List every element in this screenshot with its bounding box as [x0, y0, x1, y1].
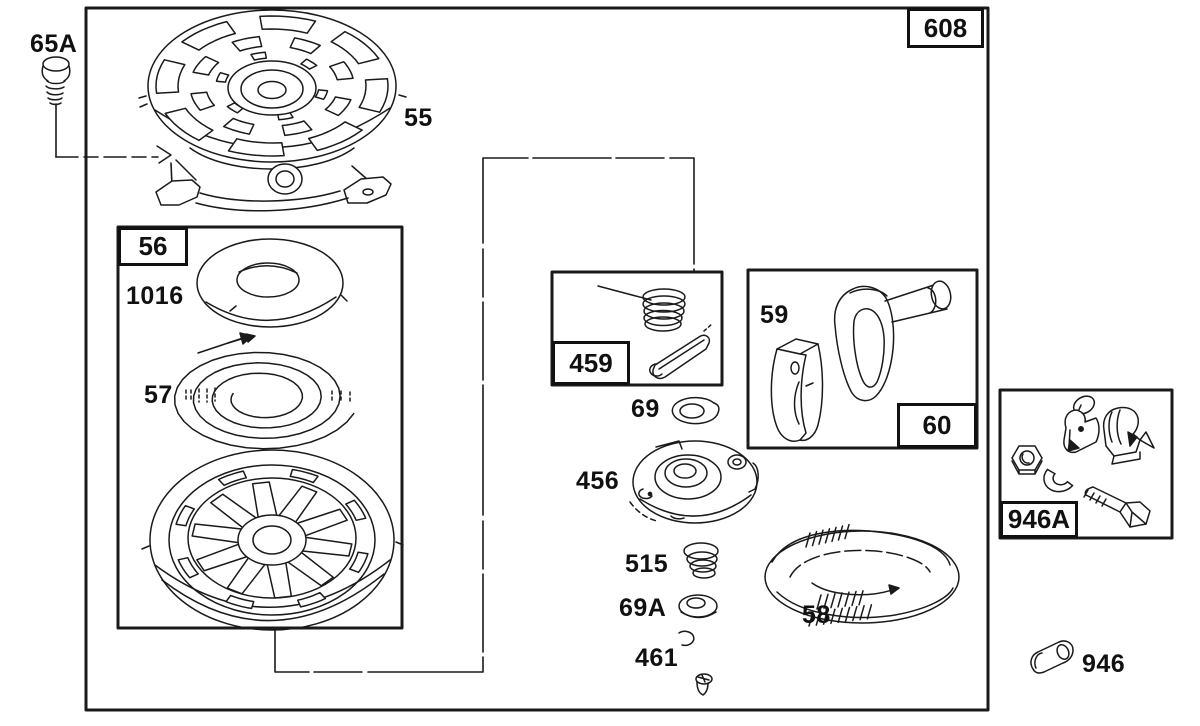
parts-diagram-page: 65A 55 1016 57 69 59 456 515 69A 461 58 …	[0, 0, 1200, 726]
screw-461-drawing	[679, 631, 712, 695]
part-label-1016: 1016	[126, 282, 184, 311]
assembly-label-box-608: 608	[907, 8, 984, 48]
washer-plate-1016-drawing	[197, 239, 347, 343]
lock-washer-drawing	[1042, 464, 1074, 495]
part-label-69: 69	[631, 395, 660, 424]
washer-69a-drawing	[679, 595, 717, 618]
part-label-55: 55	[404, 104, 433, 133]
part-label-59: 59	[760, 301, 789, 330]
part-label-946: 946	[1082, 650, 1125, 679]
starter-housing-drawing	[139, 10, 406, 162]
washer-69-drawing	[672, 398, 719, 424]
part-label-57: 57	[144, 381, 173, 410]
part-label-461: 461	[635, 644, 678, 673]
clutch-spring-drawing	[684, 543, 718, 578]
clutch-pulley-drawing	[630, 441, 758, 523]
handle-insert-drawing	[771, 339, 822, 441]
group-label-box-946a: 946A	[1000, 501, 1078, 538]
clamp-bracket-b-drawing	[1104, 407, 1154, 464]
group-label-box-459: 459	[552, 341, 630, 385]
clamp-bracket-a-drawing	[1064, 393, 1099, 453]
pawl-spring-drawing	[598, 286, 685, 331]
part-label-456: 456	[576, 467, 619, 496]
starter-grip-drawing	[835, 279, 954, 400]
part-label-65a: 65A	[30, 30, 77, 59]
group-label-box-60: 60	[897, 403, 977, 448]
pawl-drawing	[650, 324, 712, 378]
group-label-box-56: 56	[118, 227, 188, 266]
part-label-515: 515	[625, 550, 668, 579]
part-label-69a: 69A	[619, 594, 666, 623]
housing-base-drawing	[156, 148, 391, 211]
part-label-58: 58	[802, 601, 831, 630]
screw-65a-drawing	[42, 57, 70, 104]
rewind-spring-drawing	[175, 333, 354, 449]
pulley-fan-drawing	[142, 450, 403, 630]
clamp-946-drawing	[1031, 641, 1073, 673]
nut-drawing	[1012, 446, 1042, 474]
bolt-drawing	[1084, 487, 1150, 527]
starter-rope-drawing	[765, 525, 959, 626]
